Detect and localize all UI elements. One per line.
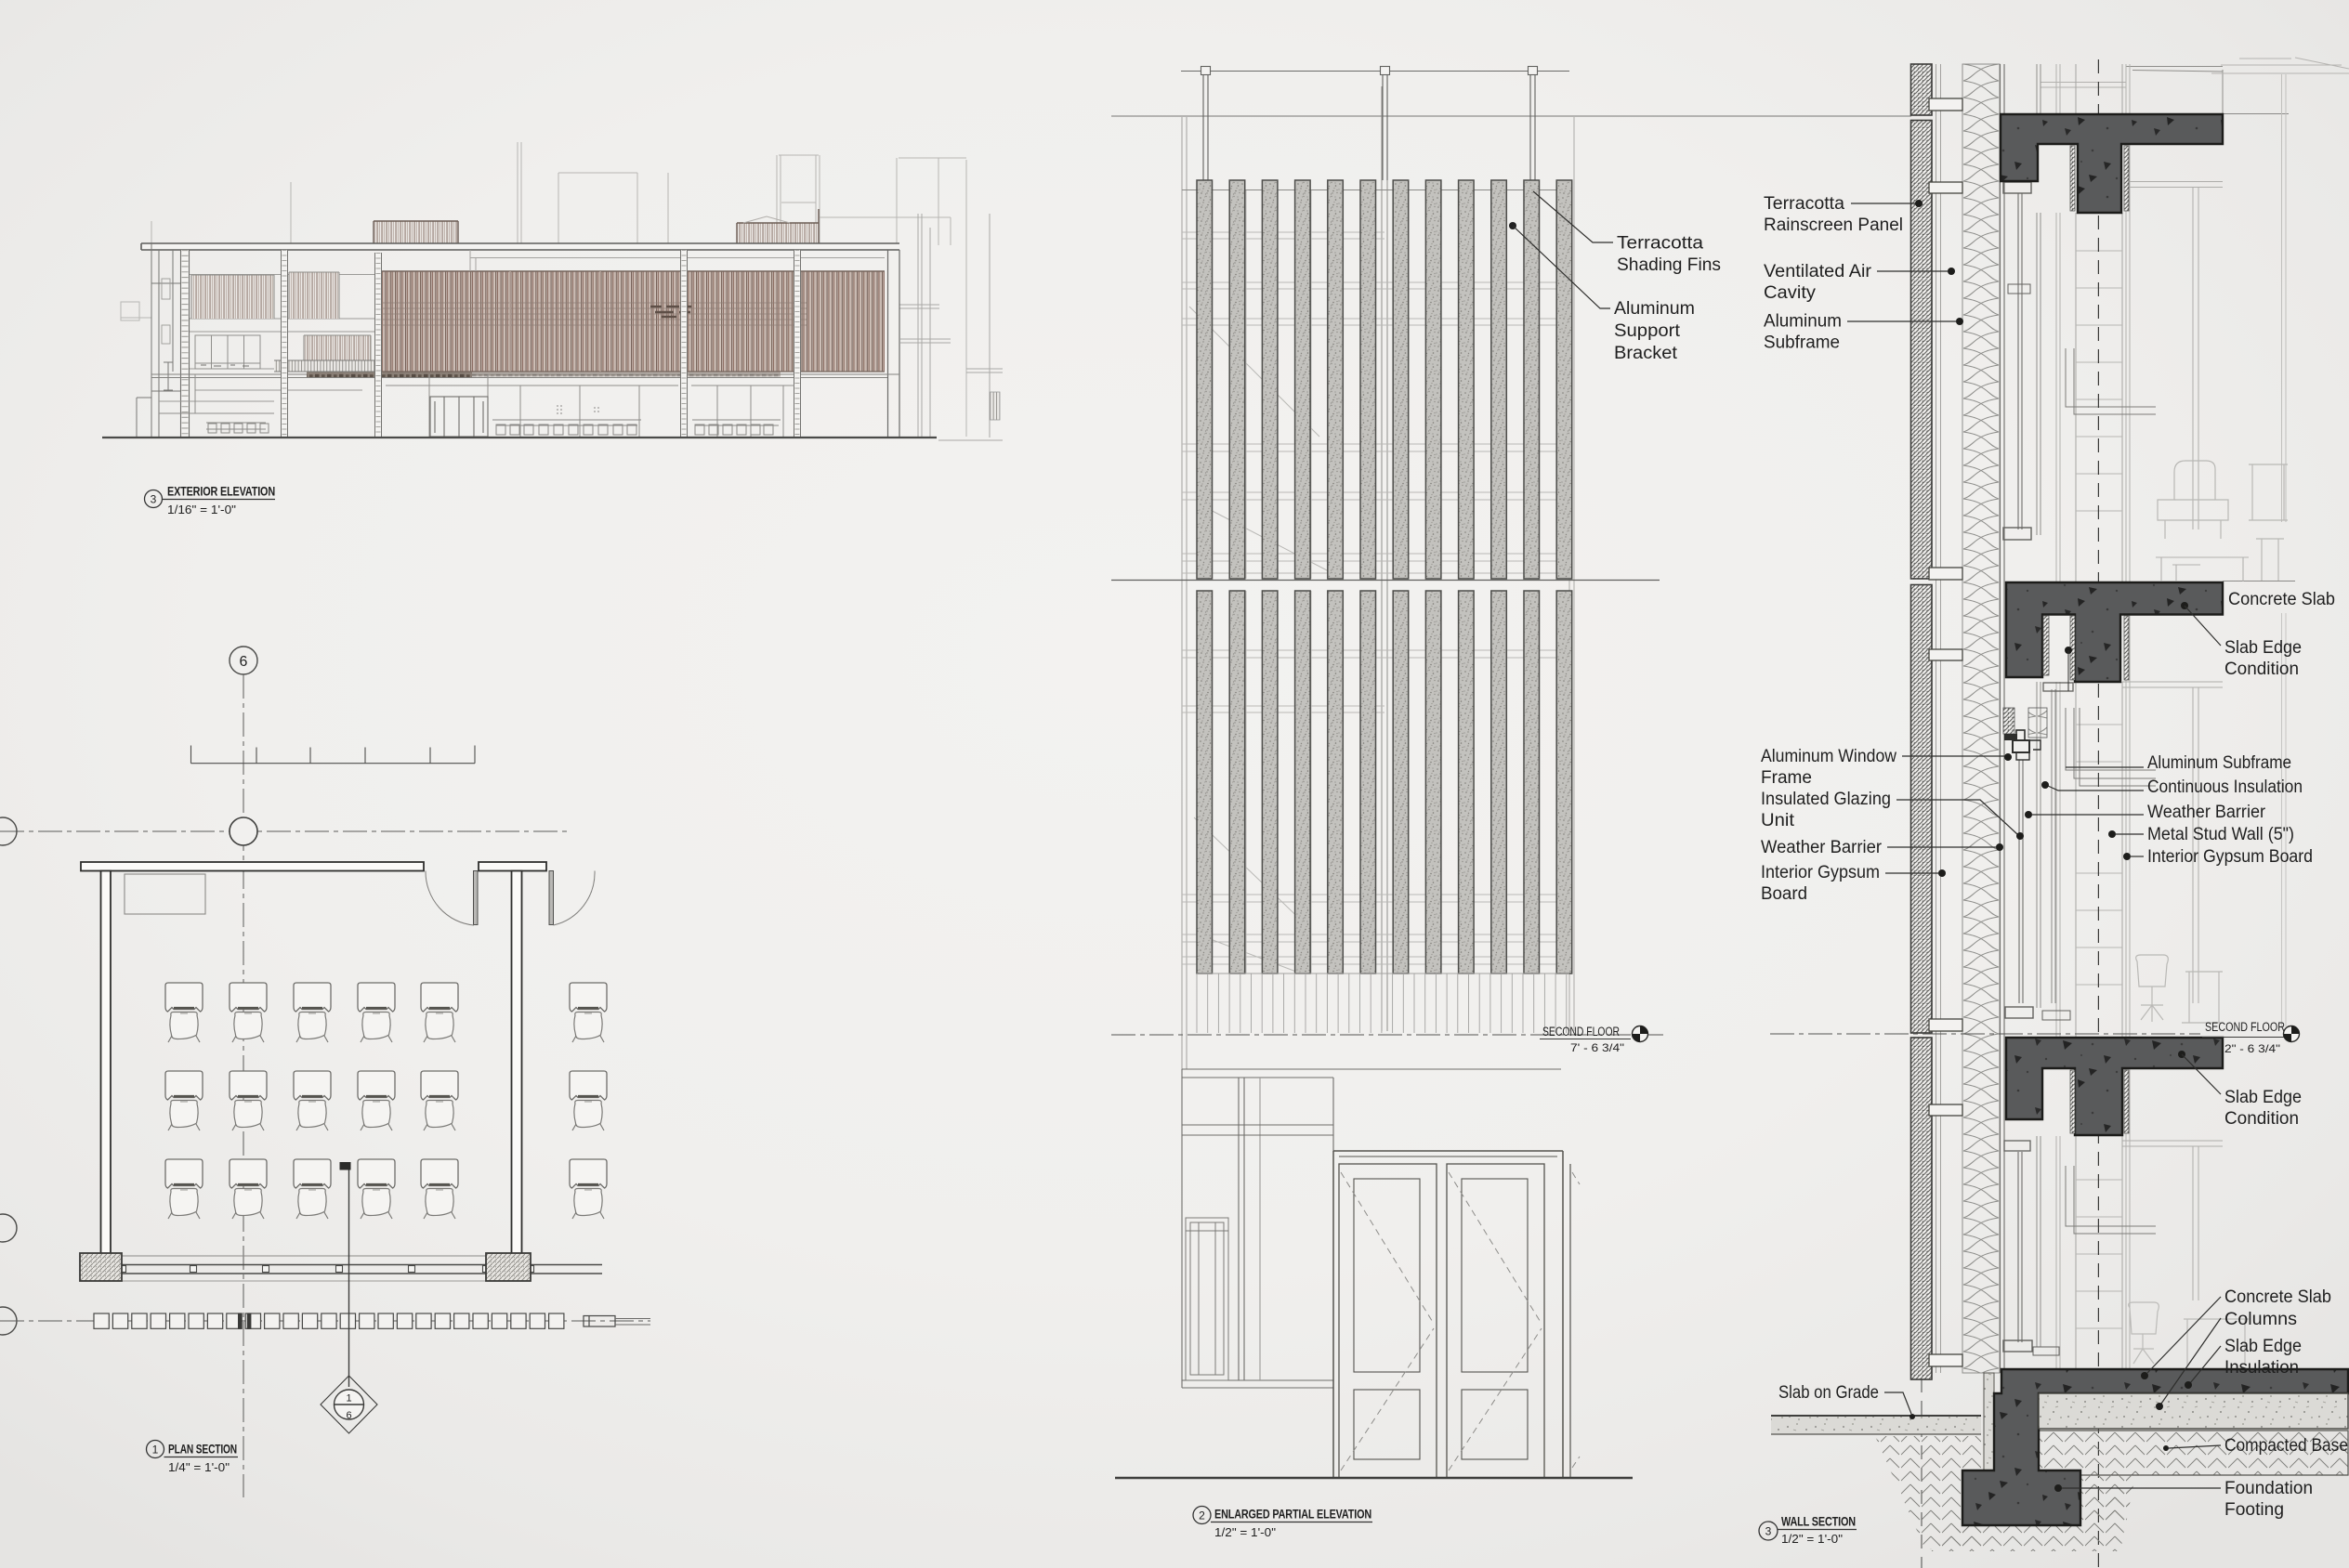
svg-text:6: 6 — [240, 654, 248, 670]
svg-text:Unit: Unit — [1761, 811, 1795, 830]
svg-text:EXTERIOR ELEVATION: EXTERIOR ELEVATION — [167, 485, 275, 499]
svg-text:Aluminum Window: Aluminum Window — [1761, 747, 1896, 766]
svg-text:Aluminum: Aluminum — [1764, 312, 1842, 332]
svg-text:Interior Gypsum: Interior Gypsum — [1761, 863, 1880, 882]
svg-text:Bracket: Bracket — [1614, 344, 1678, 363]
svg-text:Columns: Columns — [2224, 1310, 2297, 1329]
svg-text:Insulated Glazing: Insulated Glazing — [1761, 790, 1891, 809]
svg-text:3: 3 — [151, 493, 157, 506]
svg-text:Condition: Condition — [2224, 660, 2299, 679]
svg-text:SECOND FLOOR: SECOND FLOOR — [2205, 1020, 2285, 1034]
svg-text:Continuous Insulation: Continuous Insulation — [2147, 777, 2303, 797]
svg-text:Shading Fins: Shading Fins — [1617, 255, 1721, 275]
svg-text:Compacted Base: Compacted Base — [2224, 1436, 2348, 1456]
svg-text:Weather Barrier: Weather Barrier — [1761, 838, 1883, 857]
svg-text:1: 1 — [346, 1393, 351, 1405]
svg-text:Metal Stud Wall (5"): Metal Stud Wall (5") — [2147, 825, 2294, 844]
svg-text:WALL SECTION: WALL SECTION — [1781, 1515, 1856, 1529]
svg-text:Concrete Slab: Concrete Slab — [2224, 1287, 2331, 1307]
svg-text:SECOND FLOOR: SECOND FLOOR — [1542, 1025, 1620, 1039]
svg-text:Frame: Frame — [1761, 768, 1812, 788]
svg-text:Slab on Grade: Slab on Grade — [1778, 1383, 1879, 1403]
svg-text:6: 6 — [346, 1410, 351, 1421]
svg-text:Aluminum Subframe: Aluminum Subframe — [2147, 753, 2291, 773]
svg-text:7' - 6 3/4": 7' - 6 3/4" — [1570, 1041, 1624, 1054]
svg-text:Ventilated Air: Ventilated Air — [1764, 262, 1872, 281]
svg-text:Condition: Condition — [2224, 1109, 2299, 1129]
svg-text:Slab Edge: Slab Edge — [2224, 638, 2302, 658]
svg-text:PLAN SECTION: PLAN SECTION — [168, 1443, 237, 1457]
svg-text:Cavity: Cavity — [1764, 283, 1817, 303]
svg-text:Aluminum: Aluminum — [1614, 299, 1695, 319]
svg-text:3: 3 — [1765, 1525, 1772, 1538]
svg-text:Slab Edge: Slab Edge — [2224, 1337, 2302, 1356]
svg-text:Support: Support — [1614, 321, 1681, 341]
svg-text:1/2" = 1'-0": 1/2" = 1'-0" — [1781, 1533, 1843, 1546]
svg-text:Board: Board — [1761, 884, 1807, 904]
svg-text:ENLARGED PARTIAL ELEVATION: ENLARGED PARTIAL ELEVATION — [1214, 1508, 1371, 1522]
svg-text:Slab Edge: Slab Edge — [2224, 1088, 2302, 1107]
svg-text:Subframe: Subframe — [1764, 333, 1840, 353]
svg-text:2: 2 — [1199, 1509, 1205, 1522]
svg-text:Interior Gypsum Board: Interior Gypsum Board — [2147, 847, 2313, 867]
svg-text:Footing: Footing — [2224, 1500, 2284, 1520]
svg-text:Terracotta: Terracotta — [1617, 234, 1703, 254]
svg-text:Foundation: Foundation — [2224, 1479, 2313, 1498]
svg-text:Concrete Slab: Concrete Slab — [2228, 590, 2335, 609]
svg-text:1/16" = 1'-0": 1/16" = 1'-0" — [167, 503, 236, 516]
svg-text:Rainscreen Panel: Rainscreen Panel — [1764, 216, 1903, 235]
svg-text:2" - 6 3/4": 2" - 6 3/4" — [2224, 1042, 2280, 1055]
svg-text:1/4" = 1'-0": 1/4" = 1'-0" — [168, 1461, 230, 1474]
svg-text:Insulation: Insulation — [2224, 1358, 2299, 1378]
svg-text:1/2" = 1'-0": 1/2" = 1'-0" — [1214, 1526, 1276, 1539]
svg-text:1: 1 — [152, 1444, 159, 1457]
svg-text:Terracotta: Terracotta — [1764, 194, 1844, 214]
svg-text:Weather Barrier: Weather Barrier — [2147, 803, 2266, 822]
